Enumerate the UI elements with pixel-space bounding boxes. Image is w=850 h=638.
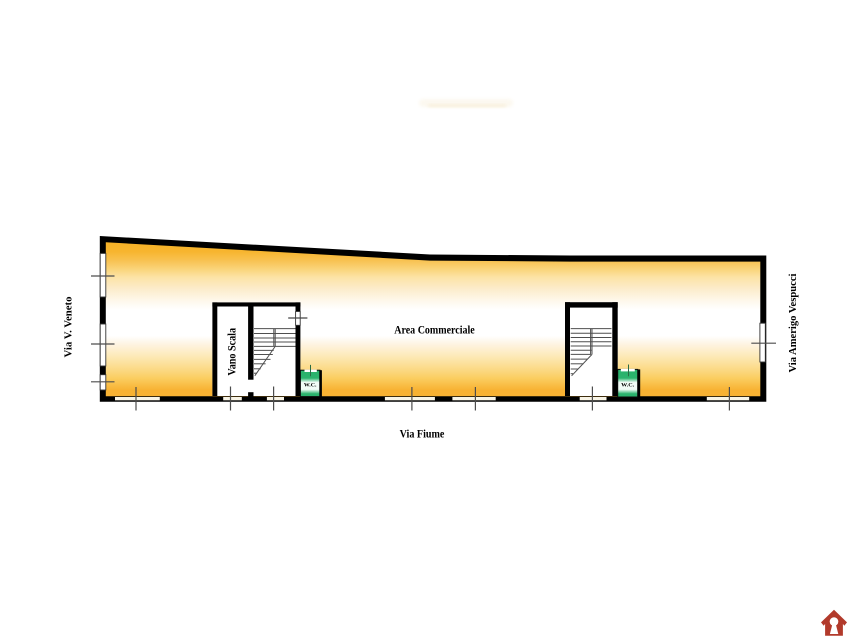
svg-text:Area Commerciale: Area Commerciale (394, 323, 475, 337)
svg-text:W.C.: W.C. (304, 383, 317, 389)
svg-text:Via V. Veneto: Via V. Veneto (62, 296, 74, 357)
svg-text:Via Amerigo Vespucci: Via Amerigo Vespucci (787, 274, 799, 373)
svg-text:Vano Scala: Vano Scala (227, 328, 239, 376)
svg-text:W.C.: W.C. (621, 383, 635, 389)
svg-text:Via Fiume: Via Fiume (400, 429, 445, 441)
